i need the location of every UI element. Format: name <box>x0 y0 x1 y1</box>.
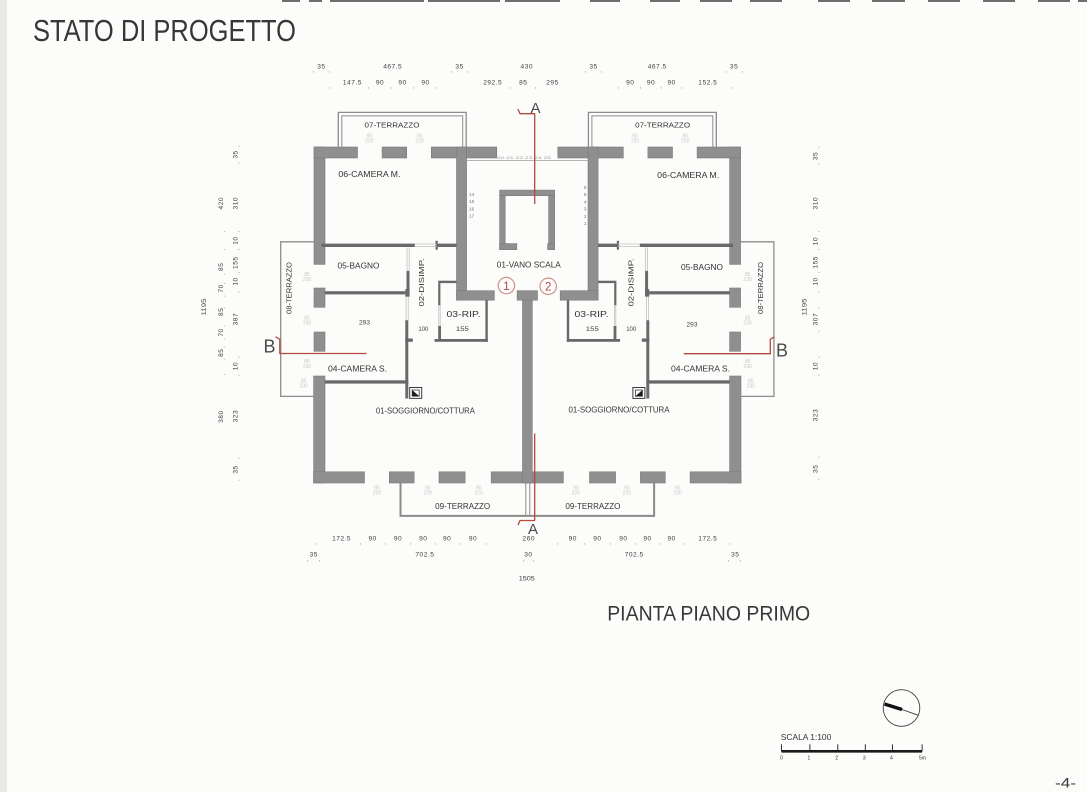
svg-text:323: 323 <box>233 410 240 423</box>
svg-text:,: , <box>535 84 537 90</box>
svg-text:220: 220 <box>424 490 433 496</box>
svg-text:,: , <box>221 249 227 250</box>
svg-text:PIANTA PIANO PRIMO: PIANTA PIANO PRIMO <box>607 602 810 626</box>
svg-text:,: , <box>235 479 241 480</box>
svg-text:14: 14 <box>469 192 475 197</box>
svg-text:220: 220 <box>631 138 640 144</box>
svg-text:1195: 1195 <box>801 298 808 315</box>
svg-text:6: 6 <box>584 185 587 190</box>
svg-text:,: , <box>360 540 362 546</box>
svg-text:90: 90 <box>419 536 427 543</box>
svg-text:230: 230 <box>743 320 752 326</box>
svg-text:90: 90 <box>369 536 377 543</box>
svg-text:230: 230 <box>743 364 752 370</box>
svg-text:152.5: 152.5 <box>698 80 717 87</box>
svg-text:155: 155 <box>586 326 600 333</box>
svg-text:,: , <box>434 540 436 546</box>
svg-text:03-RIP.: 03-RIP. <box>575 310 609 319</box>
svg-text:04-CAMERA S.: 04-CAMERA S. <box>328 365 387 374</box>
svg-text:,: , <box>235 162 241 163</box>
svg-text:220: 220 <box>365 138 374 144</box>
svg-text:,: , <box>235 374 241 375</box>
svg-text:,: , <box>618 84 620 90</box>
svg-text:17: 17 <box>469 214 475 219</box>
svg-text:,: , <box>684 540 686 546</box>
svg-text:A: A <box>530 100 540 117</box>
svg-text:90: 90 <box>443 536 451 543</box>
svg-text:100: 100 <box>626 326 636 333</box>
svg-text:90: 90 <box>398 80 406 87</box>
svg-text:35: 35 <box>813 465 820 473</box>
svg-text:5m: 5m <box>919 756 926 762</box>
svg-text:1: 1 <box>808 756 811 762</box>
svg-text:90: 90 <box>569 536 577 543</box>
svg-text:,: , <box>660 84 662 90</box>
svg-text:,: , <box>467 68 469 74</box>
svg-text:230: 230 <box>300 383 309 389</box>
svg-text:,: , <box>221 346 227 347</box>
svg-text:,: , <box>221 358 227 359</box>
svg-text:01-SOGGIORNO/COTTURA: 01-SOGGIORNO/COTTURA <box>569 406 671 415</box>
svg-text:,: , <box>486 540 488 546</box>
svg-text:20 21 22 23 24 25: 20 21 22 23 24 25 <box>497 156 551 160</box>
svg-text:06-CAMERA M.: 06-CAMERA M. <box>657 171 719 180</box>
svg-text:4: 4 <box>890 756 893 762</box>
svg-text:,: , <box>815 456 821 457</box>
svg-text:430: 430 <box>521 64 534 71</box>
svg-text:08-TERRAZZO: 08-TERRAZZO <box>756 262 765 314</box>
svg-text:1: 1 <box>503 281 509 293</box>
svg-text:,: , <box>740 557 742 563</box>
svg-text:,: , <box>815 330 821 331</box>
svg-text:90: 90 <box>421 80 429 87</box>
svg-text:,: , <box>235 249 241 250</box>
svg-text:1505: 1505 <box>519 576 535 583</box>
svg-text:,: , <box>584 540 586 546</box>
svg-text:,: , <box>329 84 331 90</box>
svg-text:,: , <box>815 478 821 479</box>
svg-text:,: , <box>815 146 821 147</box>
svg-text:307: 307 <box>813 313 820 326</box>
svg-text:2: 2 <box>545 282 551 294</box>
svg-text:,: , <box>316 540 318 546</box>
svg-text:90: 90 <box>376 80 384 87</box>
svg-text:35: 35 <box>730 64 738 71</box>
svg-text:07-TERRAZZO: 07-TERRAZZO <box>635 120 690 129</box>
svg-text:70: 70 <box>218 284 225 292</box>
svg-text:,: , <box>221 273 227 274</box>
svg-text:-4-: -4- <box>1055 776 1076 791</box>
svg-text:2: 2 <box>835 756 838 762</box>
svg-text:03-RIP.: 03-RIP. <box>447 310 481 319</box>
svg-text:90: 90 <box>643 536 651 543</box>
svg-text:35: 35 <box>233 465 240 473</box>
svg-text:155: 155 <box>456 326 470 333</box>
svg-text:35: 35 <box>731 551 739 558</box>
svg-text:05-BAGNO: 05-BAGNO <box>681 263 723 272</box>
svg-text:,: , <box>235 356 241 357</box>
svg-text:147.5: 147.5 <box>343 80 362 87</box>
svg-text:35: 35 <box>455 64 463 71</box>
svg-text:220: 220 <box>415 138 424 144</box>
svg-text:,: , <box>729 540 731 546</box>
svg-text:,: , <box>815 307 821 308</box>
svg-text:35: 35 <box>310 551 318 558</box>
svg-text:155: 155 <box>233 256 240 269</box>
svg-text:90: 90 <box>668 80 676 87</box>
svg-text:,: , <box>609 540 611 546</box>
svg-text:,: , <box>235 231 241 232</box>
svg-text:,: , <box>728 557 730 563</box>
svg-text:,: , <box>221 283 227 284</box>
svg-text:230: 230 <box>747 383 756 389</box>
svg-text:,: , <box>329 68 331 74</box>
svg-text:,: , <box>221 338 227 339</box>
svg-text:09-TERRAZZO: 09-TERRAZZO <box>435 502 490 511</box>
svg-text:,: , <box>221 307 227 308</box>
svg-text:90: 90 <box>469 536 477 543</box>
svg-text:16: 16 <box>469 206 475 211</box>
svg-text:310: 310 <box>813 197 820 210</box>
svg-text:3: 3 <box>584 207 587 212</box>
svg-text:,: , <box>533 557 535 563</box>
svg-text:01-SOGGIORNO/COTTURA: 01-SOGGIORNO/COTTURA <box>376 406 475 415</box>
svg-text:07-TERRAZZO: 07-TERRAZZO <box>365 120 420 129</box>
svg-text:,: , <box>221 325 227 326</box>
svg-text:,: , <box>815 291 821 292</box>
svg-text:,: , <box>235 145 241 146</box>
svg-text:10: 10 <box>813 237 820 245</box>
svg-text:387: 387 <box>233 313 240 326</box>
svg-text:,: , <box>640 84 642 90</box>
svg-text:04-CAMERA S.: 04-CAMERA S. <box>671 365 730 374</box>
svg-text:220: 220 <box>623 490 632 496</box>
svg-text:380: 380 <box>218 410 225 423</box>
svg-text:85: 85 <box>519 80 527 87</box>
svg-text:230: 230 <box>303 320 312 326</box>
svg-text:,: , <box>410 540 412 546</box>
svg-text:323: 323 <box>813 409 820 422</box>
svg-text:,: , <box>815 163 821 164</box>
svg-text:,: , <box>742 68 744 74</box>
svg-text:310: 310 <box>233 197 240 210</box>
svg-text:,: , <box>390 84 392 90</box>
svg-text:10: 10 <box>233 277 240 285</box>
svg-text:,: , <box>726 68 728 74</box>
svg-text:,: , <box>221 231 227 232</box>
svg-text:02-DISIMP.: 02-DISIMP. <box>627 259 636 307</box>
svg-text:,: , <box>221 374 227 375</box>
svg-text:,: , <box>459 540 461 546</box>
svg-text:0: 0 <box>780 756 783 762</box>
svg-text:90: 90 <box>394 536 402 543</box>
svg-text:,: , <box>235 457 241 458</box>
svg-text:02-DISIMP.: 02-DISIMP. <box>417 259 426 307</box>
svg-text:260: 260 <box>523 536 536 543</box>
svg-text:230: 230 <box>743 277 752 283</box>
svg-text:,: , <box>221 295 227 296</box>
svg-text:90: 90 <box>626 80 634 87</box>
svg-text:220: 220 <box>673 490 682 496</box>
svg-text:,: , <box>659 540 661 546</box>
svg-text:,: , <box>413 84 415 90</box>
svg-text:85: 85 <box>218 263 225 271</box>
svg-text:30: 30 <box>524 551 532 558</box>
svg-text:,: , <box>235 291 241 292</box>
svg-text:,: , <box>235 272 241 273</box>
svg-text:172.5: 172.5 <box>332 536 351 543</box>
svg-text:155: 155 <box>813 256 820 269</box>
svg-text:220: 220 <box>373 490 382 496</box>
svg-text:35: 35 <box>589 64 597 71</box>
svg-text:90: 90 <box>593 536 601 543</box>
svg-text:172.5: 172.5 <box>698 536 717 543</box>
svg-text:220: 220 <box>475 490 484 496</box>
svg-text:08-TERRAZZO: 08-TERRAZZO <box>285 262 294 314</box>
svg-text:420: 420 <box>218 197 225 210</box>
svg-text:230: 230 <box>303 277 312 283</box>
svg-text:220: 220 <box>572 490 581 496</box>
svg-text:,: , <box>635 540 637 546</box>
svg-text:292.5: 292.5 <box>483 80 502 87</box>
svg-text:,: , <box>368 84 370 90</box>
svg-text:10: 10 <box>233 236 240 244</box>
svg-text:90: 90 <box>647 80 655 87</box>
svg-text:220: 220 <box>681 138 690 144</box>
svg-text:2: 2 <box>584 214 587 219</box>
svg-text:702.5: 702.5 <box>625 551 644 558</box>
svg-text:85: 85 <box>218 349 225 357</box>
svg-text:,: , <box>585 68 587 74</box>
svg-text:,: , <box>681 84 683 90</box>
svg-text:,: , <box>313 68 315 74</box>
svg-text:293: 293 <box>687 322 699 329</box>
svg-text:06-CAMERA M.: 06-CAMERA M. <box>338 170 400 179</box>
svg-text:10: 10 <box>813 277 820 285</box>
svg-text:,: , <box>815 356 821 357</box>
svg-text:B: B <box>263 337 275 357</box>
svg-text:702.5: 702.5 <box>415 551 434 558</box>
svg-text:,: , <box>815 249 821 250</box>
svg-text:,: , <box>307 557 309 563</box>
svg-text:,: , <box>815 231 821 232</box>
svg-text:,: , <box>557 540 559 546</box>
svg-text:90: 90 <box>668 536 676 543</box>
svg-text:,: , <box>523 557 525 563</box>
svg-text:230: 230 <box>303 364 312 370</box>
svg-text:467.5: 467.5 <box>648 64 667 71</box>
svg-text:,: , <box>384 540 386 546</box>
svg-text:467.5: 467.5 <box>383 64 402 71</box>
svg-text:,: , <box>815 374 821 375</box>
svg-text:293: 293 <box>359 320 371 327</box>
svg-text:35: 35 <box>317 64 325 71</box>
svg-text:4: 4 <box>584 199 587 204</box>
svg-text:90: 90 <box>619 536 627 543</box>
svg-text:10: 10 <box>813 362 820 370</box>
svg-text:15: 15 <box>469 199 475 204</box>
svg-text:05-BAGNO: 05-BAGNO <box>338 262 380 271</box>
svg-text:,: , <box>510 84 512 90</box>
svg-text:3: 3 <box>863 756 866 762</box>
svg-text:,: , <box>732 84 734 90</box>
svg-text:70: 70 <box>218 328 225 336</box>
svg-text:10: 10 <box>233 362 240 370</box>
svg-text:,: , <box>815 272 821 273</box>
svg-text:,: , <box>319 557 321 563</box>
svg-text:09-TERRAZZO: 09-TERRAZZO <box>565 502 620 511</box>
svg-text:5: 5 <box>584 192 587 197</box>
svg-text:01-VANO SCALA: 01-VANO SCALA <box>497 261 562 270</box>
svg-text:1: 1 <box>584 221 587 226</box>
svg-text:,: , <box>601 68 603 74</box>
svg-text:35: 35 <box>813 152 820 160</box>
svg-text:100: 100 <box>418 326 428 333</box>
svg-text:35: 35 <box>233 150 240 158</box>
svg-text:1195: 1195 <box>201 298 208 315</box>
svg-text:,: , <box>451 68 453 74</box>
svg-text:295: 295 <box>546 80 559 87</box>
svg-text:STATO DI PROGETTO: STATO DI PROGETTO <box>33 13 296 48</box>
svg-text:SCALA 1:100: SCALA 1:100 <box>781 733 832 742</box>
svg-text:,: , <box>436 84 438 90</box>
svg-text:B: B <box>776 341 788 361</box>
